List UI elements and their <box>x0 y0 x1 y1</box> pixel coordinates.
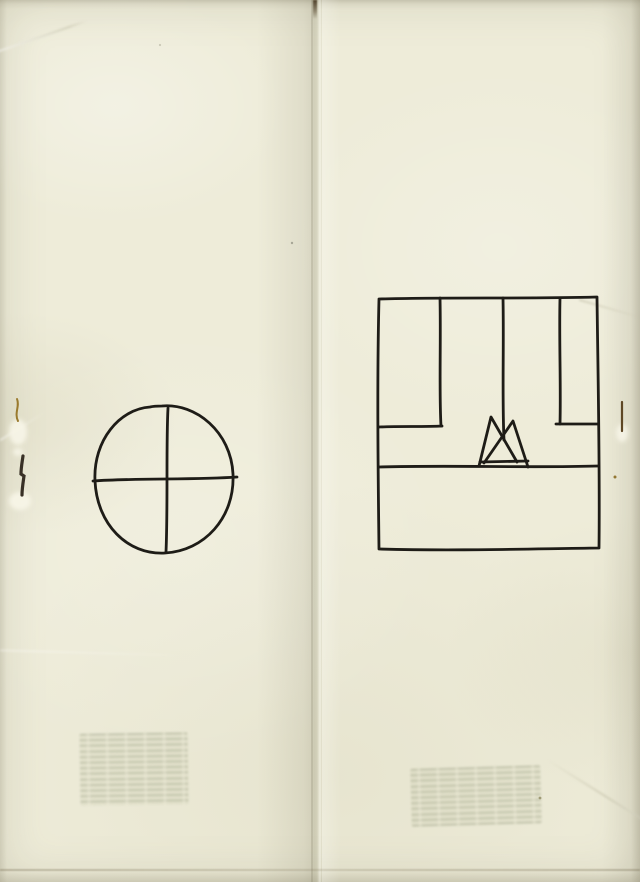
ink-art-layer <box>0 0 640 882</box>
fiber-speck-top-left <box>159 44 161 46</box>
figure-circle-with-cross <box>93 406 237 553</box>
paper-tear-highlight-left-top <box>13 448 23 456</box>
figure-partitioned-square-triangles <box>378 297 599 550</box>
scanned-booklet-spread <box>0 0 640 882</box>
rust-speck-right-edge <box>614 476 617 479</box>
speck-right-page-bottom <box>539 797 542 800</box>
staple-left <box>21 456 24 495</box>
paper-tear-highlight-left-lower <box>9 492 31 510</box>
speck-left-page-mid <box>291 242 293 244</box>
staple-left-rust-fragment <box>17 399 18 421</box>
paper-tear-highlight-left-upper <box>9 419 27 445</box>
